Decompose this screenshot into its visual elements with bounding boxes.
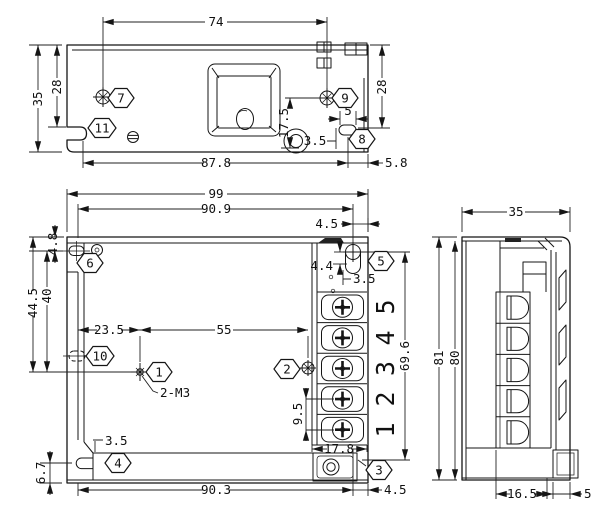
dim-label-80: 80 [447, 350, 462, 365]
dim-label-90-3: 90.3 [201, 482, 231, 497]
balloon-9-label: 9 [341, 91, 349, 106]
slot-head-screw [128, 132, 139, 143]
terminal-number-3: 3 [371, 361, 400, 376]
dim-label-4-5-bottom: 4.5 [384, 482, 407, 497]
dim-label-17-5: 17.5 [276, 108, 291, 138]
terminal-number-5: 5 [371, 299, 400, 314]
side-foot [462, 448, 578, 478]
dim-74: 74 [103, 14, 327, 90]
dim-label-16-5: 16.5 [507, 486, 537, 501]
mechanical-drawing-canvas: 74 35 28 28 17.5 [0, 0, 600, 511]
dim-label-3-5-top: 3.5 [304, 133, 327, 148]
dim-label-3-5-foot: 3.5 [105, 433, 128, 448]
balloon-4: 4 [105, 454, 131, 473]
dim-label-69-6: 69.6 [397, 341, 412, 371]
balloon-10-label: 10 [92, 349, 107, 364]
side-terminal-stack [496, 292, 530, 448]
dim-6-7: 6.7 [33, 451, 72, 495]
thread-label: 2-M3 [160, 385, 190, 400]
balloon-3: 3 [366, 461, 392, 480]
balloon-6: 6 [77, 254, 103, 273]
dim-3-5-top-view: 3.5 [304, 128, 336, 149]
balloon-3-label: 3 [375, 463, 383, 478]
side-cover-vents [551, 250, 566, 450]
dim-label-35-top: 35 [30, 91, 45, 106]
dim-label-28-left: 28 [49, 79, 64, 94]
balloon-8: 8 [349, 130, 375, 149]
dim-40: 40 [39, 251, 54, 372]
terminal-number-4: 4 [371, 330, 400, 345]
terminal-screw-4 [333, 328, 353, 348]
balloon-10: 10 [86, 347, 114, 366]
terminal-screw-1 [333, 420, 353, 440]
dim-label-23-5: 23.5 [94, 322, 124, 337]
dim-5-8: 5.8 [348, 154, 408, 170]
dim-5-side: 5 [541, 482, 592, 501]
dim-label-5-8: 5.8 [385, 155, 408, 170]
dim-label-4-4: 4.4 [310, 258, 333, 273]
terminal-screw-5 [333, 297, 353, 317]
dim-28-right: 28 [358, 45, 390, 128]
three-view-drawing: 74 35 28 28 17.5 [0, 0, 600, 511]
dim-label-99: 99 [208, 186, 223, 201]
balloon-2-label: 2 [283, 362, 291, 377]
balloon-1-label: 1 [155, 365, 163, 380]
dim-label-4-5-top: 4.5 [315, 216, 338, 231]
dim-label-35-side: 35 [508, 204, 523, 219]
balloon-1: 1 [146, 363, 172, 382]
dim-28-left: 28 [48, 45, 66, 127]
dim-3-5-foot: 3.5 [93, 433, 128, 452]
dim-label-40: 40 [39, 288, 54, 303]
dim-label-28-right: 28 [374, 79, 389, 94]
dim-label-55: 55 [216, 322, 231, 337]
dim-4-5-top: 4.5 [315, 216, 380, 232]
dim-label-17-8: 17.8 [324, 441, 354, 456]
dim-label-74: 74 [208, 14, 223, 29]
side-view-internal [500, 238, 554, 292]
dim-55: 55 [140, 322, 308, 358]
balloon-11-label: 11 [94, 121, 109, 136]
balloon-3-leader [358, 460, 366, 466]
balloon-8-label: 8 [358, 132, 366, 147]
balloon-11: 11 [88, 119, 116, 138]
dim-16-5: 16.5 [496, 450, 547, 501]
front-view: 2-M3 [25, 186, 412, 497]
balloon-6-label: 6 [86, 256, 94, 271]
dim-4-8: 4.8 [29, 225, 64, 263]
dim-35-side: 35 [462, 204, 570, 232]
balloon-2: 2 [274, 360, 300, 379]
balloon-5: 5 [368, 252, 394, 271]
dim-17-8: 17.8 [312, 441, 367, 456]
side-view: 35 81 80 16.5 5 [431, 204, 592, 501]
foot-left [76, 453, 93, 480]
dim-4-4: 4.4 [310, 244, 347, 273]
ac-input-pins [317, 42, 367, 68]
dim-label-6-7: 6.7 [33, 462, 48, 485]
side-screw-hole [300, 360, 316, 376]
dim-label-81: 81 [431, 350, 446, 365]
balloon-9: 9 [332, 89, 358, 108]
dim-4-5-bottom: 4.5 [353, 482, 407, 497]
dim-label-3-5-terminal: 3.5 [353, 271, 376, 286]
terminal-screw-3 [333, 359, 353, 379]
dim-label-9-5: 9.5 [290, 403, 305, 426]
dim-label-5-side: 5 [584, 486, 592, 501]
dim-label-87-8: 87.8 [201, 155, 231, 170]
transformer-outline [208, 64, 280, 136]
dim-3-5-terminal: 3.5 [343, 270, 376, 286]
top-view: 74 35 28 28 17.5 [29, 14, 408, 170]
terminal-number-2: 2 [371, 391, 400, 406]
terminal-screw-2 [333, 389, 353, 409]
terminal-numbers: 5 4 3 2 1 [371, 299, 400, 437]
dim-80: 80 [447, 241, 462, 480]
terminal-number-1: 1 [371, 422, 400, 437]
balloon-7: 7 [108, 89, 134, 108]
balloon-5-label: 5 [377, 254, 385, 269]
dim-label-90-9: 90.9 [201, 201, 231, 216]
balloon-7-label: 7 [117, 91, 125, 106]
balloon-4-label: 4 [114, 456, 122, 471]
foot-right [313, 453, 357, 481]
dim-label-44-5: 44.5 [25, 288, 40, 318]
